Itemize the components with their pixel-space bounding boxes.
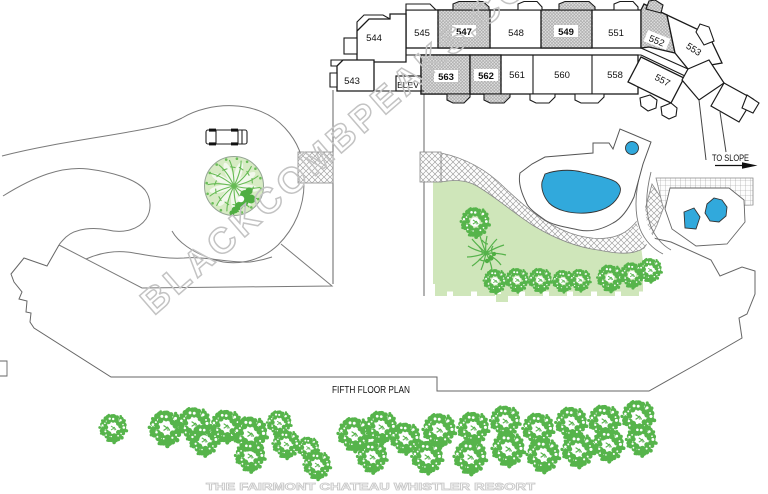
svg-text:544: 544 [366,33,382,44]
svg-text:FIFTH FLOOR PLAN: FIFTH FLOOR PLAN [332,385,410,396]
svg-text:561: 561 [509,70,525,81]
svg-text:548: 548 [508,28,524,39]
svg-text:560: 560 [554,70,570,81]
svg-text:543: 543 [344,76,360,87]
svg-text:558: 558 [607,70,623,81]
svg-text:TO SLOPE: TO SLOPE [712,153,749,163]
svg-text:551: 551 [608,28,624,39]
svg-text:549: 549 [558,27,574,38]
svg-text:THE FAIRMONT CHATEAU WHISTLER: THE FAIRMONT CHATEAU WHISTLER RESORT [206,481,536,493]
svg-text:562: 562 [478,71,494,82]
